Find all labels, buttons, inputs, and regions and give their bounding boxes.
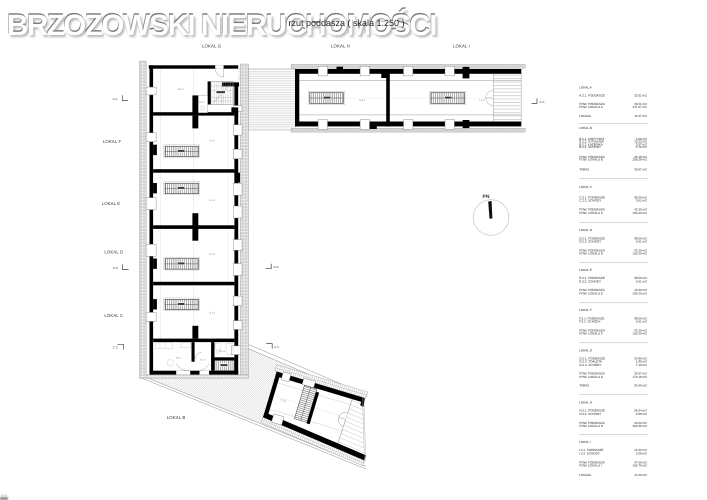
svg-text:E.2.2. SCHODY: E.2.2. SCHODY — [579, 279, 601, 283]
svg-text:147.07 m2: 147.07 m2 — [632, 105, 647, 109]
svg-text:LOKAL E: LOKAL E — [102, 201, 121, 206]
svg-text:LOKAL C: LOKAL C — [579, 185, 593, 189]
svg-text:LOKAL I: LOKAL I — [579, 440, 591, 444]
svg-text:B.2.2: B.2.2 — [176, 356, 182, 359]
svg-text:POW. LOKALU I: POW. LOKALU I — [579, 464, 602, 468]
svg-text:159.29 m2: 159.29 m2 — [632, 292, 647, 296]
svg-text:159.29 m2: 159.29 m2 — [632, 211, 647, 215]
svg-text:C-C: C-C — [113, 346, 119, 350]
svg-text:G.2.2: G.2.2 — [199, 101, 205, 104]
svg-text:H.2.1: H.2.1 — [360, 99, 366, 102]
svg-text:A-A: A-A — [113, 97, 118, 101]
svg-text:B-B: B-B — [274, 265, 279, 269]
svg-text:A-A: A-A — [540, 100, 545, 104]
svg-text:B.2.4. SCHODY: B.2.4. SCHODY — [579, 145, 601, 149]
svg-text:LOKAL I: LOKAL I — [453, 44, 470, 49]
svg-text:LOKAL B: LOKAL B — [167, 415, 186, 420]
svg-text:G.2.1: G.2.1 — [178, 88, 185, 91]
svg-text:C-C: C-C — [274, 345, 280, 349]
svg-text:LOKAL C: LOKAL C — [104, 313, 123, 318]
svg-text:POW. LOKALU H: POW. LOKALU H — [579, 424, 603, 428]
svg-text:POW. LOKALU A: POW. LOKALU A — [579, 105, 604, 109]
svg-text:G.2.3. SCHODY: G.2.3. SCHODY — [579, 363, 601, 367]
svg-text:LOGGIA: LOGGIA — [579, 114, 592, 118]
svg-text:159.29 m2: 159.29 m2 — [632, 252, 647, 256]
svg-text:B-B: B-B — [113, 266, 118, 270]
svg-text:E.2.1: E.2.1 — [210, 199, 216, 202]
svg-text:LOKAL H: LOKAL H — [579, 400, 592, 404]
svg-text:POW. LOKALU E: POW. LOKALU E — [579, 292, 603, 296]
svg-text:POW. LOKALU B: POW. LOKALU B — [579, 158, 603, 162]
svg-text:F.2.2. SCHODY: F.2.2. SCHODY — [579, 320, 600, 324]
svg-text:LOKAL B: LOKAL B — [579, 126, 592, 130]
svg-text:B.2.3: B.2.3 — [220, 350, 226, 353]
svg-text:3.61 m2: 3.61 m2 — [636, 320, 647, 324]
svg-text:POW. LOKALU G: POW. LOKALU G — [579, 375, 604, 379]
svg-text:I.2.1: I.2.1 — [480, 99, 485, 102]
svg-text:3.79 m2: 3.79 m2 — [636, 145, 647, 149]
svg-text:LOKAL D: LOKAL D — [579, 228, 593, 232]
svg-text:LOKAL D: LOKAL D — [104, 249, 123, 254]
svg-text:LOKAL G: LOKAL G — [579, 348, 593, 352]
svg-text:POW. LOKALU C: POW. LOKALU C — [579, 211, 604, 215]
svg-text:C.2.2. SCHODY: C.2.2. SCHODY — [579, 199, 601, 203]
svg-text:A.2.1. PODDASZE: A.2.1. PODDASZE — [579, 93, 605, 97]
svg-text:34.00 m2: 34.00 m2 — [634, 384, 647, 388]
svg-text:159.29 m2: 159.29 m2 — [632, 332, 647, 336]
svg-text:TARAS: TARAS — [579, 384, 589, 388]
svg-text:LOKAL F: LOKAL F — [579, 308, 592, 312]
svg-text:3.61 m2: 3.61 m2 — [636, 279, 647, 283]
svg-text:LOKAL F: LOKAL F — [103, 139, 122, 144]
svg-text:7.19 m2: 7.19 m2 — [636, 363, 647, 367]
svg-text:LOKAL H: LOKAL H — [331, 44, 350, 49]
svg-text:158.28 m2: 158.28 m2 — [632, 158, 647, 162]
svg-text:LOKAL E: LOKAL E — [579, 268, 592, 272]
svg-text:3.68 m2: 3.68 m2 — [636, 412, 647, 416]
svg-text:169.36 m2: 169.36 m2 — [632, 424, 647, 428]
svg-text:TARAS: TARAS — [579, 168, 589, 172]
svg-text:3.68 m2: 3.68 m2 — [636, 452, 647, 456]
svg-text:POW. LOKALU D: POW. LOKALU D — [579, 252, 604, 256]
svg-text:3.61 m2: 3.61 m2 — [636, 240, 647, 244]
svg-text:PN: PN — [483, 194, 490, 200]
svg-text:D.2.1: D.2.1 — [210, 253, 216, 256]
svg-text:I.2.2. SCHODY: I.2.2. SCHODY — [579, 452, 600, 456]
svg-text:D.2.2. SCHODY: D.2.2. SCHODY — [579, 240, 601, 244]
svg-text:F.2.1: F.2.1 — [210, 140, 216, 143]
svg-text:3.61 m2: 3.61 m2 — [636, 199, 647, 203]
svg-text:LOKAL G: LOKAL G — [202, 44, 222, 49]
svg-text:LOGGIA: LOGGIA — [579, 473, 592, 477]
svg-text:11.67 m2: 11.67 m2 — [634, 114, 647, 118]
svg-text:179.16 m2: 179.16 m2 — [632, 375, 647, 379]
svg-text:LOKAL A: LOKAL A — [579, 85, 592, 89]
svg-text:155.70 m2: 155.70 m2 — [632, 464, 647, 468]
svg-text:POW. LOKALU F: POW. LOKALU F — [579, 332, 603, 336]
svg-text:36.07 m2: 36.07 m2 — [634, 168, 647, 172]
svg-text:B.2.1: B.2.1 — [201, 358, 207, 361]
svg-text:13.49 m2: 13.49 m2 — [634, 473, 647, 477]
svg-text:33.51 m2: 33.51 m2 — [634, 93, 647, 97]
svg-text:C.2.1: C.2.1 — [210, 312, 216, 315]
svg-text:H.2.2. SCHODY: H.2.2. SCHODY — [579, 412, 601, 416]
